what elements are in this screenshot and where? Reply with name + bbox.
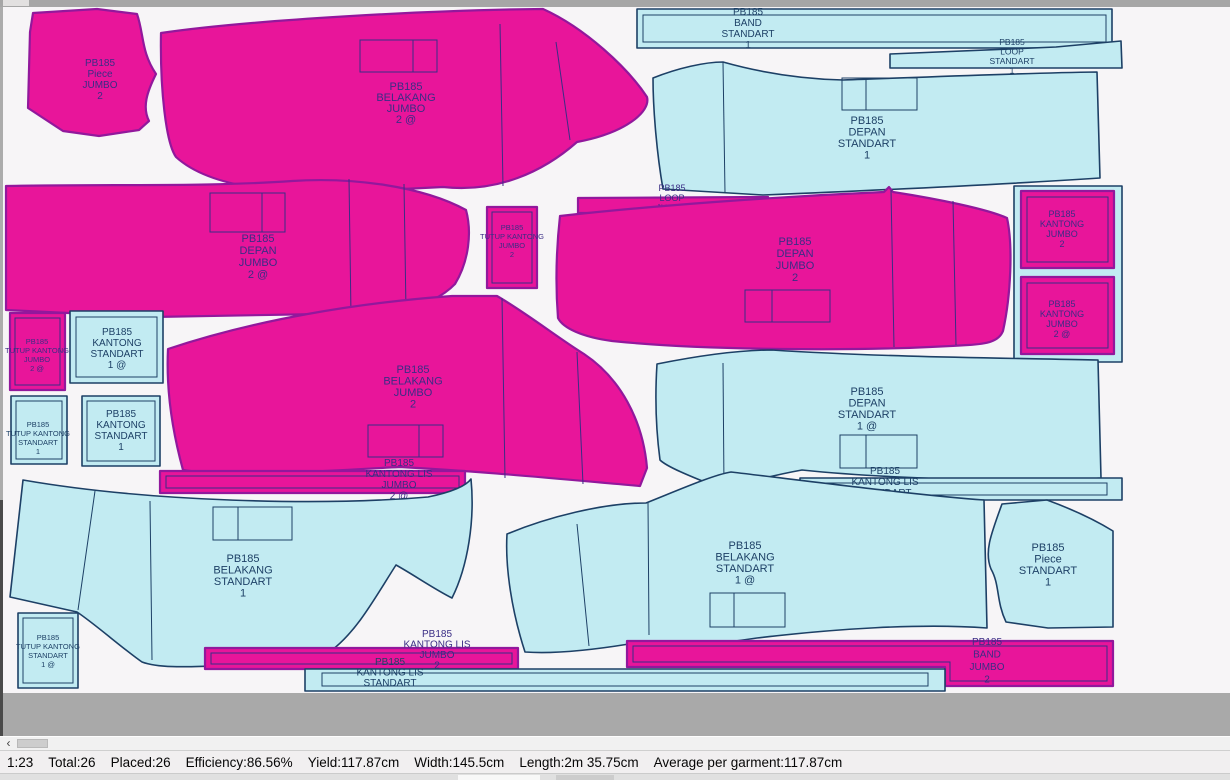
piece-pb185-depan-standart-1[interactable]: PB185DEPANSTANDART1 — [653, 62, 1100, 195]
status-bar: 1:23 Total:26 Placed:26 Efficiency:86.56… — [0, 750, 1230, 773]
taskbar-segment-dark — [556, 775, 614, 780]
piece-pb185-kantong-jumbo-2a[interactable]: PB185KANTONGJUMBO2 @ — [1021, 277, 1114, 354]
piece-pb185-depan-jumbo-2a[interactable]: PB185DEPANJUMBO2 @ — [6, 179, 469, 317]
top-scrollbar-thumb[interactable] — [3, 0, 29, 6]
status-total: Total:26 — [48, 755, 95, 770]
marker-canvas[interactable]: PB185PieceJUMBO2 PB185BELAKANGJUMBO2 @ P… — [3, 7, 1230, 736]
piece-pb185-tutup-kantong-standart-1a[interactable]: PB185TUTUP KANTONGSTANDART1 @ — [16, 613, 80, 688]
piece-pb185-kantong-standart-1a[interactable]: PB185KANTONGSTANDART1 @ — [70, 311, 163, 383]
status-length: Length:2m 35.75cm — [519, 755, 638, 770]
scroll-left-arrow-icon[interactable]: ‹ — [2, 737, 15, 750]
piece-pb185-kantong-jumbo-2[interactable]: PB185KANTONGJUMBO2 — [1021, 191, 1114, 268]
piece-pb185-band-standart-1[interactable]: PB185BANDSTANDART1 — [637, 7, 1112, 51]
outside-marker-area — [3, 693, 1230, 736]
taskbar-strip — [0, 773, 1230, 780]
status-average: Average per garment:117.87cm — [654, 755, 843, 770]
piece-pb185-piece-jumbo-2[interactable]: PB185PieceJUMBO2 — [28, 9, 156, 136]
status-width: Width:145.5cm — [414, 755, 504, 770]
taskbar-segment-light — [458, 775, 540, 780]
marker-nesting-app-window: PB185PieceJUMBO2 PB185BELAKANGJUMBO2 @ P… — [0, 0, 1230, 780]
piece-pb185-kantong-standart-1[interactable]: PB185KANTONGSTANDART1 — [82, 396, 160, 466]
horizontal-scrollbar-thumb[interactable] — [17, 739, 48, 748]
piece-pb185-depan-jumbo-2[interactable]: PB185DEPANJUMBO2 — [557, 187, 1011, 349]
piece-pb185-tutup-kantong-jumbo-2[interactable]: PB185TUTUP KANTONGJUMBO2 — [480, 207, 544, 288]
status-placed: Placed:26 — [111, 755, 171, 770]
status-efficiency: Efficiency:86.56% — [186, 755, 293, 770]
horizontal-scrollbar[interactable]: ‹ — [0, 736, 1230, 750]
piece-pb185-tutup-kantong-standart-1[interactable]: PB185TUTUP KANTONGSTANDART1 — [6, 396, 70, 464]
status-scale: 1:23 — [7, 755, 33, 770]
piece-pb185-tutup-kantong-jumbo-2a[interactable]: PB185TUTUP KANTONGJUMBO2 @ — [5, 313, 69, 390]
status-yield: Yield:117.87cm — [308, 755, 400, 770]
top-scrollbar-track[interactable] — [0, 0, 1230, 7]
